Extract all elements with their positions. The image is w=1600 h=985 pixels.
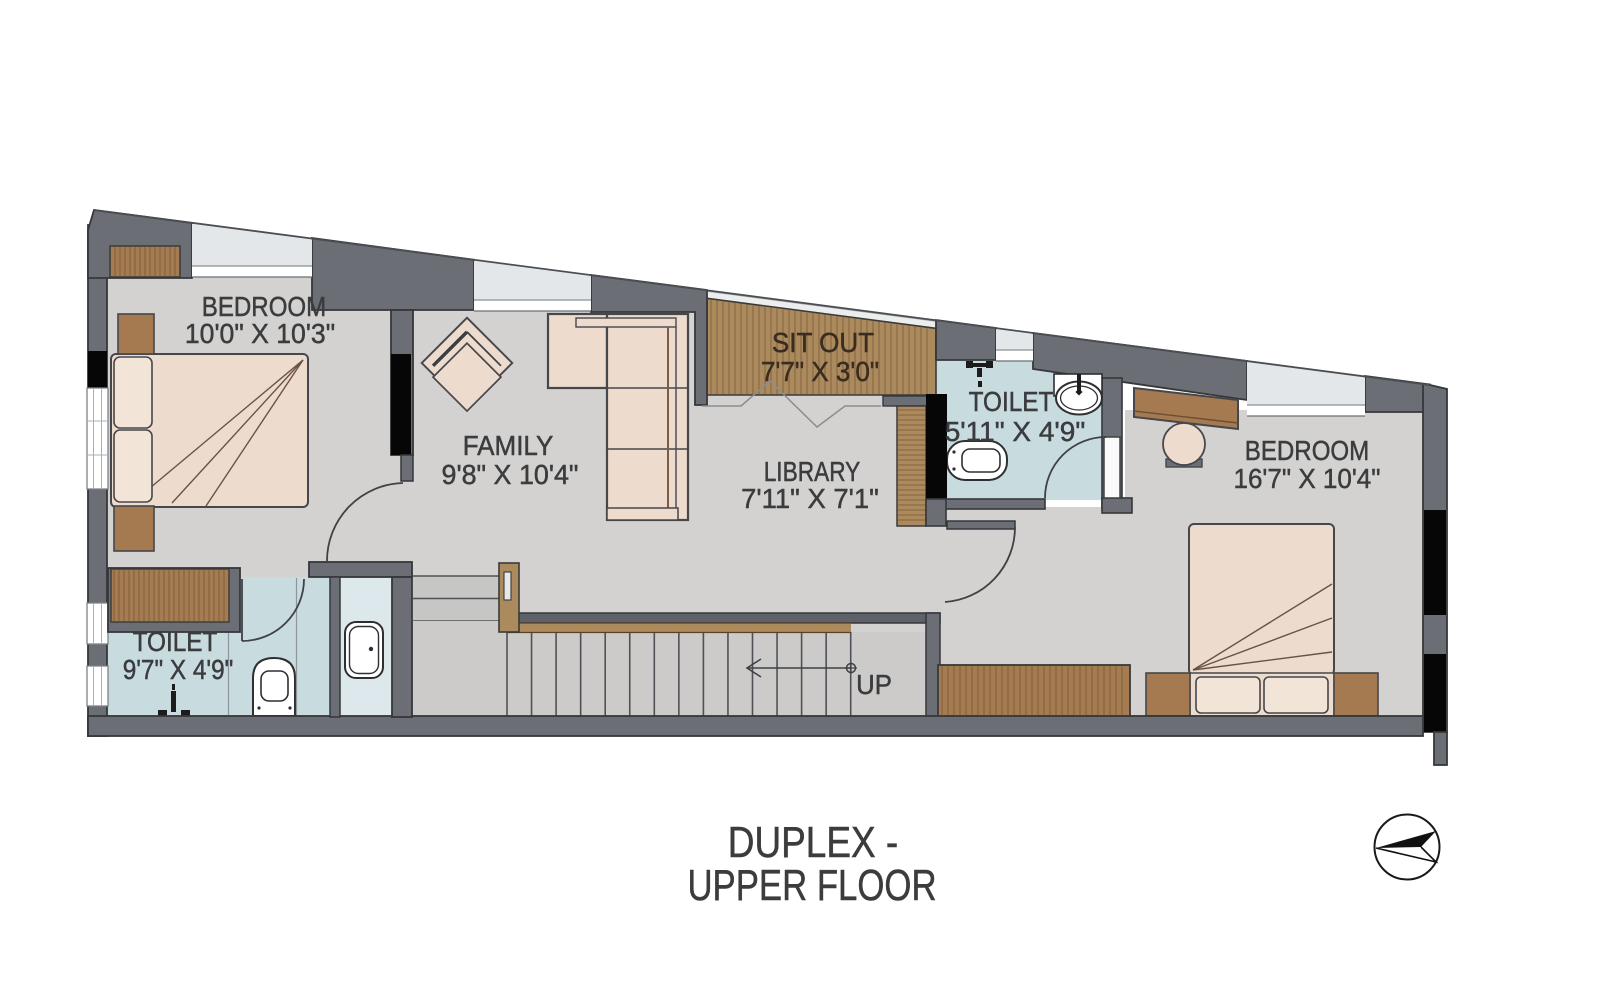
svg-text:SIT OUT: SIT OUT — [772, 327, 874, 358]
svg-text:TOILET: TOILET — [969, 385, 1054, 417]
svg-text:UPPER FLOOR: UPPER FLOOR — [687, 861, 936, 910]
svg-text:7'7" X 3'0": 7'7" X 3'0" — [761, 356, 879, 387]
svg-text:9'8" X 10'4": 9'8" X 10'4" — [442, 458, 579, 490]
svg-text:16'7" X 10'4": 16'7" X 10'4" — [1233, 463, 1380, 494]
svg-text:5'11" X 4'9": 5'11" X 4'9" — [945, 416, 1086, 447]
svg-text:BEDROOM: BEDROOM — [1245, 434, 1369, 466]
svg-text:DUPLEX -: DUPLEX - — [728, 817, 898, 867]
svg-text:UP: UP — [856, 669, 892, 700]
svg-text:FAMILY: FAMILY — [463, 430, 554, 461]
svg-text:10'0" X 10'3": 10'0" X 10'3" — [185, 317, 335, 349]
svg-text:9'7" X 4'9": 9'7" X 4'9" — [123, 653, 234, 685]
svg-text:7'11" X 7'1": 7'11" X 7'1" — [741, 483, 879, 514]
